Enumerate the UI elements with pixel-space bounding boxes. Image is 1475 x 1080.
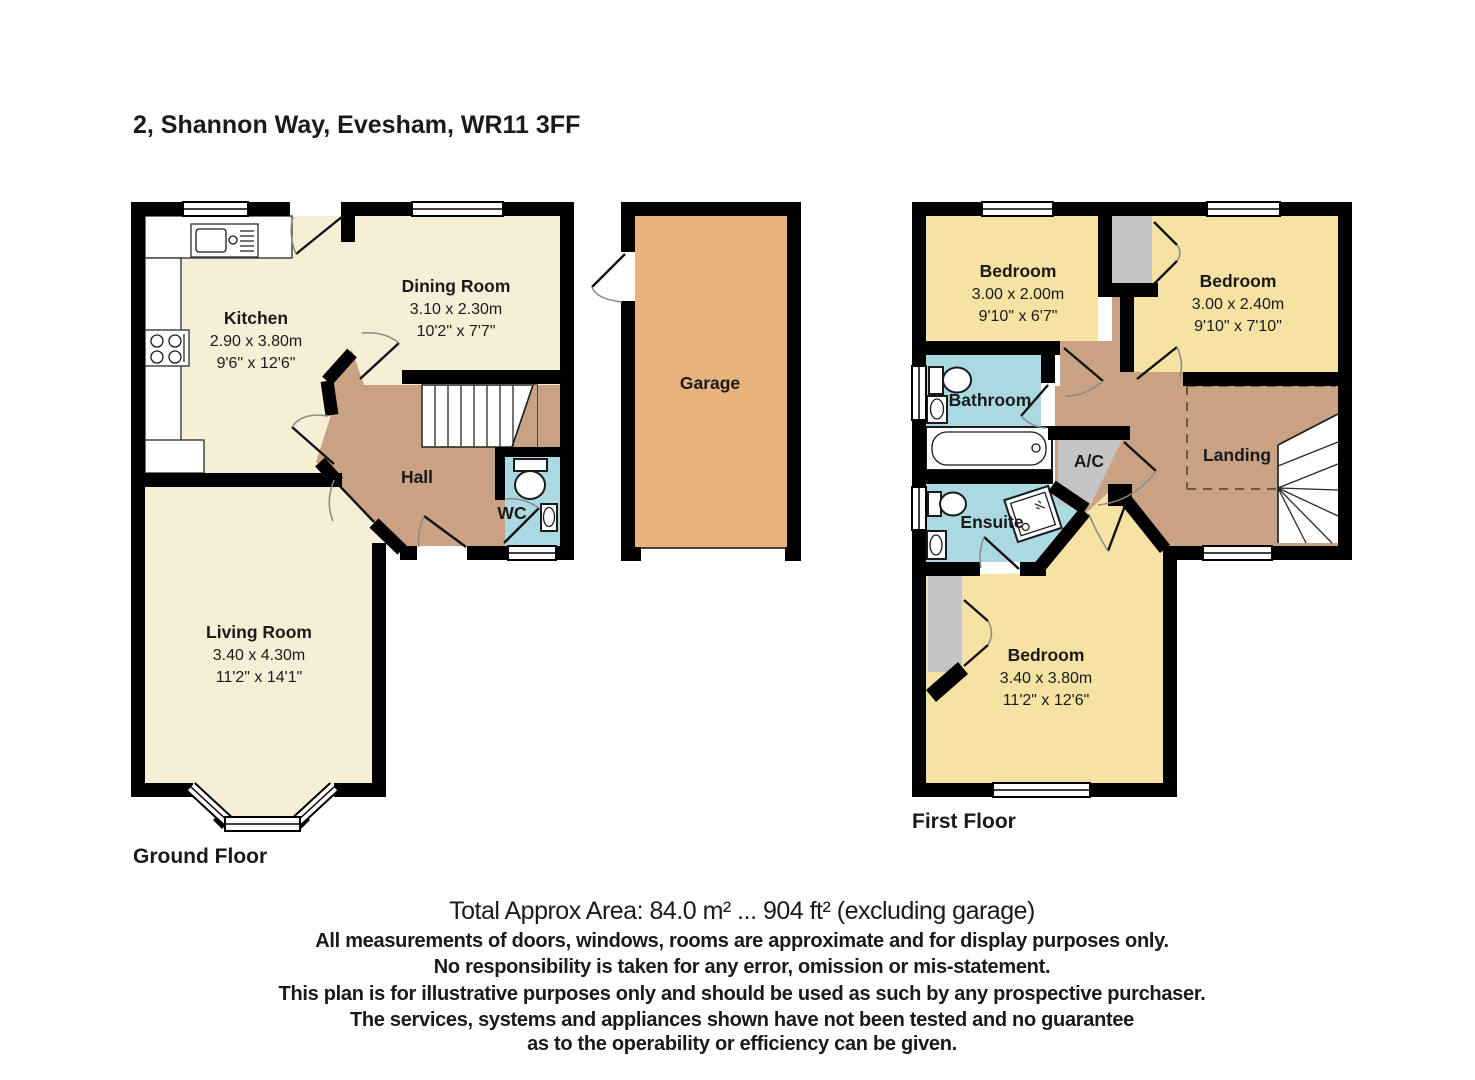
wc-label: WC xyxy=(497,503,527,523)
bedroom2-window xyxy=(1207,202,1280,216)
page-title: 2, Shannon Way, Evesham, WR11 3FF xyxy=(133,111,580,139)
dining-window xyxy=(412,202,503,216)
kitchen-hob xyxy=(145,330,189,366)
wc-window xyxy=(508,546,556,560)
disclaimer-line: This plan is for illustrative purposes o… xyxy=(279,983,1206,1005)
bedroom1-window xyxy=(982,202,1053,216)
wc-toilet xyxy=(514,459,547,499)
disclaimer-line: No responsibility is taken for any error… xyxy=(434,956,1050,978)
garage-plan: Garage xyxy=(592,202,801,561)
bedroom2-metric: 3.00 x 2.40m xyxy=(1192,296,1285,313)
ground-floor-label: Ground Floor xyxy=(133,845,267,868)
bedroom3-metric: 3.40 x 3.80m xyxy=(1000,670,1093,687)
bath xyxy=(926,427,1052,470)
bedroom3-imperial: 11'2" x 12'6" xyxy=(1003,692,1090,709)
living-room-metric: 3.40 x 4.30m xyxy=(213,647,306,664)
bedroom2-imperial: 9'10" x 7'10" xyxy=(1194,318,1282,335)
disclaimer-line: as to the operability or efficiency can … xyxy=(527,1033,957,1055)
footer: Total Approx Area: 84.0 m² ... 904 ft² (… xyxy=(279,897,1206,1055)
total-area-text: Total Approx Area: 84.0 m² ... 904 ft² (… xyxy=(449,897,1035,925)
bathroom-label: Bathroom xyxy=(949,390,1032,410)
floorplan-canvas: 2, Shannon Way, Evesham, WR11 3FF xyxy=(0,0,1475,1080)
kitchen-metric: 2.90 x 3.80m xyxy=(210,333,303,350)
bedroom1-metric: 3.00 x 2.00m xyxy=(972,286,1065,303)
ensuite-window xyxy=(912,487,926,530)
bedroom1-imperial: 9'10" x 6'7" xyxy=(979,308,1058,325)
wc-basin xyxy=(541,504,557,531)
bathroom-window xyxy=(912,366,926,420)
living-room-imperial: 11'2" x 14'1" xyxy=(216,669,303,686)
living-room-label: Living Room xyxy=(206,622,312,642)
kitchen-label: Kitchen xyxy=(224,308,288,328)
bathroom-basin xyxy=(927,396,947,423)
ground-floor-plan: Kitchen 2.90 x 3.80m 9'6" x 12'6" Dining… xyxy=(131,202,574,868)
hall-label: Hall xyxy=(401,467,433,487)
dining-room-metric: 3.10 x 2.30m xyxy=(410,301,503,318)
dining-room-label: Dining Room xyxy=(402,276,511,296)
kitchen-sink xyxy=(191,224,258,257)
landing-label: Landing xyxy=(1203,445,1271,465)
landing-window xyxy=(1203,546,1272,560)
airing-cupboard-top xyxy=(1108,216,1152,283)
staircase xyxy=(422,385,537,447)
ensuite-basin xyxy=(927,531,946,559)
bedroom3-window xyxy=(993,783,1090,797)
garage-label: Garage xyxy=(680,373,741,393)
kitchen-imperial: 9'6" x 12'6" xyxy=(217,355,296,372)
bedroom1-label: Bedroom xyxy=(980,261,1057,281)
wardrobe xyxy=(928,575,962,672)
kitchen-window xyxy=(183,202,248,216)
disclaimer-line: All measurements of doors, windows, room… xyxy=(315,930,1168,952)
dining-room-imperial: 10'2" x 7'7" xyxy=(417,323,496,340)
first-floor-label: First Floor xyxy=(912,810,1016,833)
garage-side-door xyxy=(592,254,625,302)
floorplan-page: 2, Shannon Way, Evesham, WR11 3FF xyxy=(0,0,1475,1080)
bedroom2-label: Bedroom xyxy=(1200,271,1277,291)
first-floor-plan: Bedroom 3.00 x 2.00m 9'10" x 6'7" Bedroo… xyxy=(912,202,1352,833)
ensuite-label: Ensuite xyxy=(960,512,1023,532)
airing-cupboard-label: A/C xyxy=(1074,451,1105,471)
disclaimer-line: The services, systems and appliances sho… xyxy=(350,1009,1134,1031)
bedroom3-label: Bedroom xyxy=(1008,645,1085,665)
